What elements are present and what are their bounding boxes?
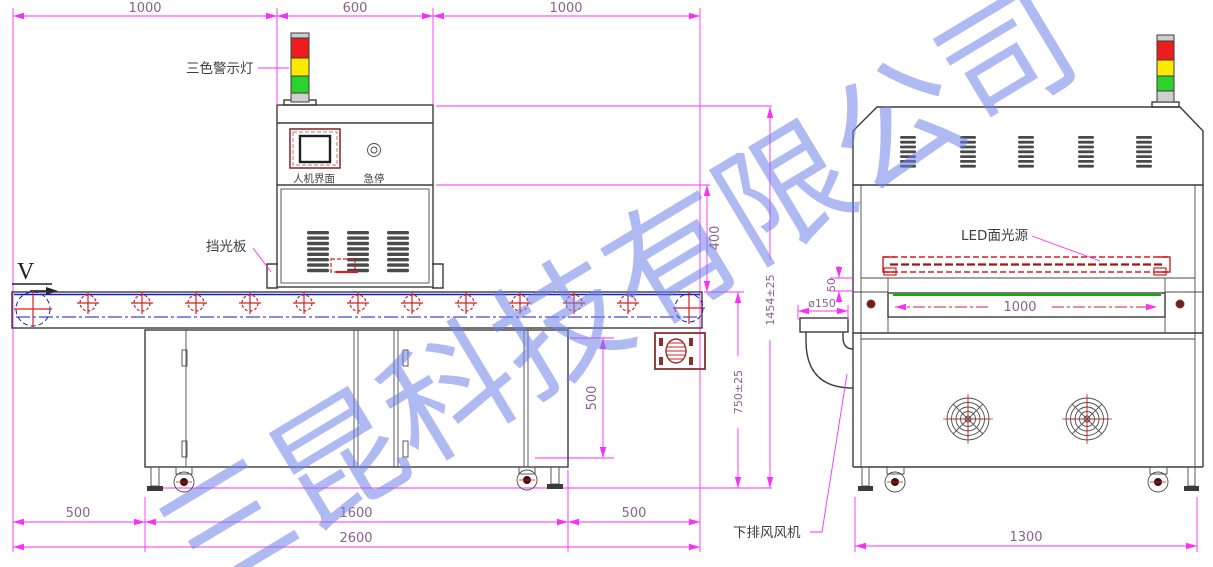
exhaust-fan-callout: 下排风风机	[733, 374, 847, 541]
belt-width-dimension: 1000	[895, 300, 1157, 315]
label-estop: 急停	[364, 172, 385, 185]
view-direction-marker: V	[12, 259, 58, 295]
fan-right	[1062, 394, 1112, 444]
side-bottom-dimension: 1300	[855, 497, 1197, 552]
light-shield-callout: 挡光板	[206, 239, 271, 272]
left-pulley	[14, 291, 52, 327]
dim-gap-50: 50	[825, 278, 838, 292]
led-panel	[883, 257, 1170, 275]
side-legs	[858, 467, 1199, 492]
dim-top-right: 1000	[549, 1, 582, 16]
machine-drawing-svg: 1000 600 1000 三色警示灯	[0, 0, 1213, 567]
dim-side-total: 1300	[1009, 530, 1042, 545]
warning-light-side	[1152, 35, 1179, 107]
control-head: 人机界面 急停	[267, 105, 443, 288]
label-hmi: 人机界面	[293, 172, 335, 185]
label-exhaust-fan: 下排风风机	[733, 525, 801, 541]
dim-bottom-right: 500	[622, 506, 647, 521]
side-body	[853, 185, 1203, 467]
dim-bottom-left: 500	[66, 506, 91, 521]
warning-light-front	[284, 33, 316, 105]
hmi-screen[interactable]	[290, 129, 340, 168]
led-callout: LED面光源	[961, 228, 1100, 261]
watermark-text: 三昆科技有限公司	[133, 0, 1103, 567]
watermark: 三昆科技有限公司	[133, 0, 1103, 567]
light-red-segment	[291, 38, 309, 58]
exhaust-duct: ø150	[798, 297, 853, 388]
dim-belt-height: 750±25	[732, 370, 745, 414]
label-led-panel: LED面光源	[961, 228, 1028, 244]
label-light-shield: 挡光板	[206, 239, 247, 255]
light-green-segment	[291, 76, 309, 93]
head-vents	[307, 231, 409, 272]
cooling-fans	[943, 394, 1112, 444]
warning-light-callout: 三色警示灯	[186, 60, 289, 77]
dim-top-left: 1000	[128, 1, 161, 16]
side-bolt-right	[1176, 300, 1184, 308]
front-top-dimensions: 1000 600 1000	[13, 1, 700, 16]
view-marker-letter: V	[17, 259, 35, 285]
fan-left	[943, 394, 993, 444]
light-yellow-segment	[291, 58, 309, 76]
side-bolt-left	[867, 300, 875, 308]
label-warning-light: 三色警示灯	[186, 60, 254, 77]
engineering-drawing-page: 1000 600 1000 三色警示灯	[0, 0, 1213, 567]
dim-duct-diameter: ø150	[808, 297, 836, 310]
dim-top-mid: 600	[343, 1, 368, 16]
estop-button[interactable]	[368, 144, 381, 157]
dim-belt-width: 1000	[1003, 300, 1036, 315]
